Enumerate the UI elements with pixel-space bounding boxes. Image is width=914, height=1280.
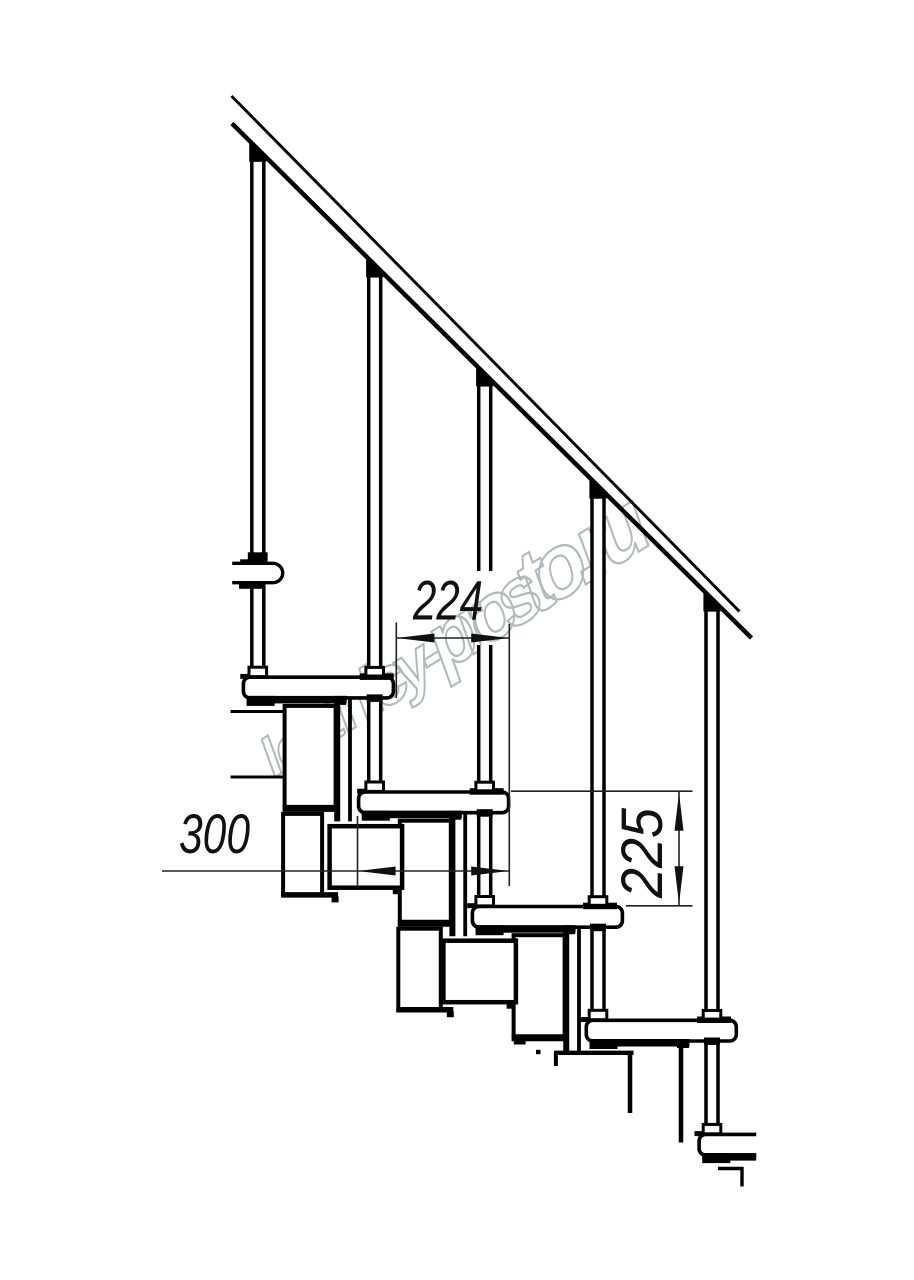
svg-text:300: 300 bbox=[179, 803, 250, 865]
svg-text:224: 224 bbox=[412, 570, 483, 632]
svg-text:225: 225 bbox=[610, 807, 675, 899]
